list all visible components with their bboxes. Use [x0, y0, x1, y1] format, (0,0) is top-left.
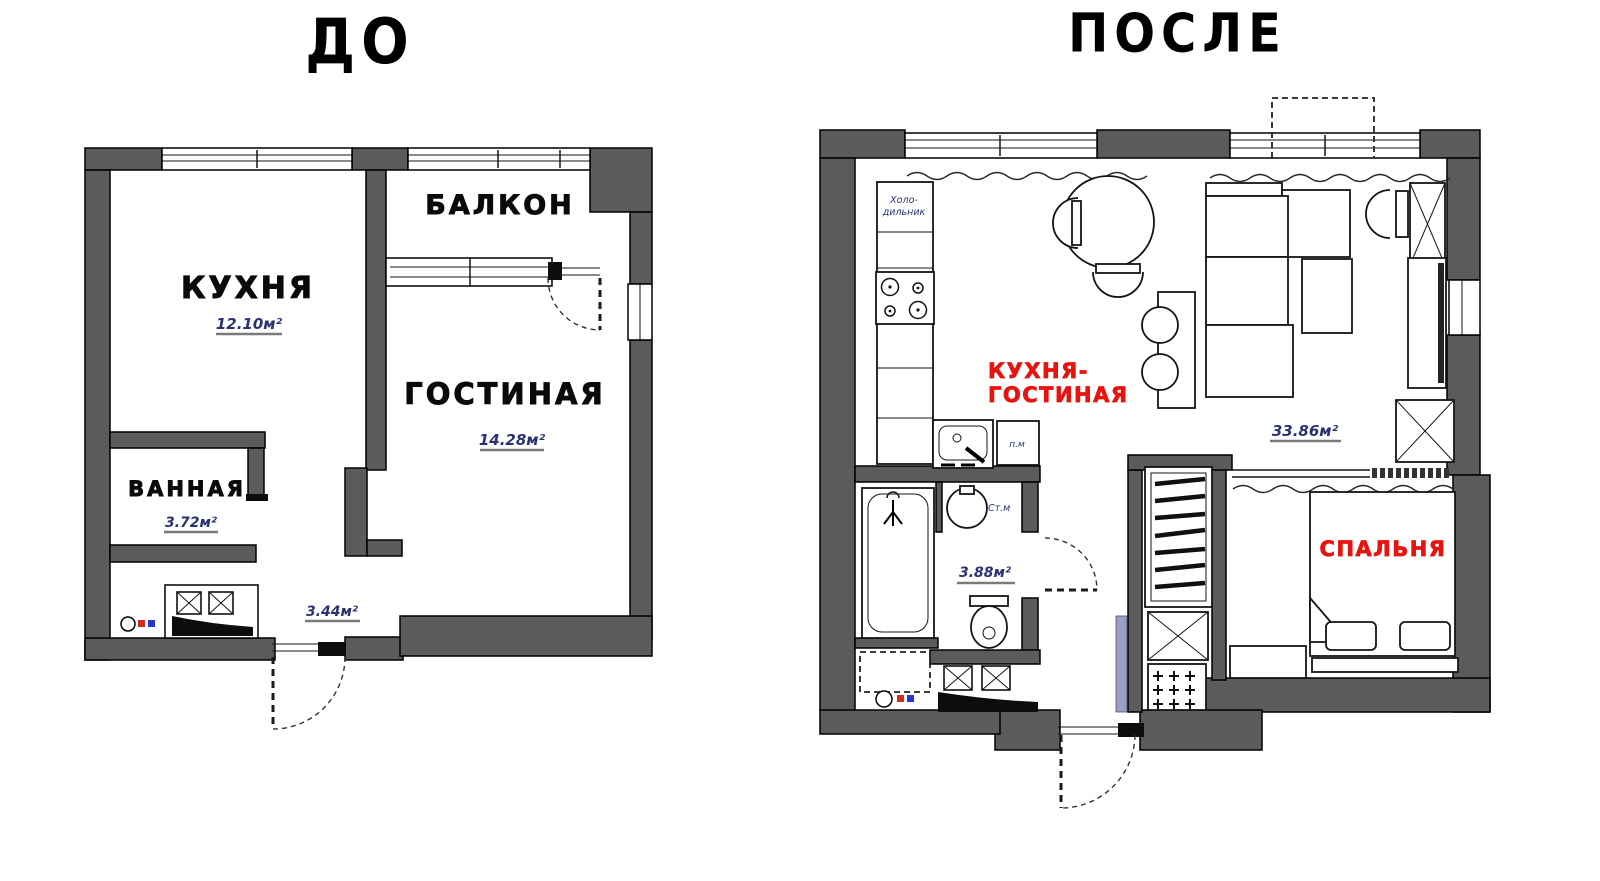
toilet	[970, 596, 1008, 648]
kitchen-living-label-line2: ГОСТИНАЯ	[988, 383, 1129, 407]
hanger-wardrobe	[1145, 467, 1212, 607]
kitchen-sink	[933, 420, 993, 468]
vent-shaft-before	[165, 585, 258, 638]
entry-door-before	[272, 642, 346, 729]
bathroom-area: 3.72м²	[165, 515, 218, 531]
before-windows	[162, 148, 652, 340]
shaft-x-box	[1148, 612, 1208, 660]
living-room-label: ГОСТИНАЯ	[404, 377, 606, 411]
wardrobe-x-cabinet	[1410, 183, 1445, 265]
balcony-label: БАЛКОН	[425, 190, 575, 221]
stove	[876, 272, 934, 324]
fridge-label-line2: дильник	[882, 207, 926, 218]
floorplan-comparison: ДО ПОСЛЕ	[0, 0, 1600, 881]
sliding-panel	[1116, 616, 1127, 712]
washing-machine-label: Ст.м	[988, 503, 1010, 514]
storage-x-box	[1396, 400, 1454, 462]
living-room-area: 14.28м²	[479, 431, 546, 449]
plumbing-riser-before	[121, 617, 155, 631]
storage-niche	[860, 652, 930, 692]
tv-console	[1408, 258, 1446, 388]
kitchen-label: КУХНЯ	[181, 271, 315, 306]
entry-door-after	[1058, 723, 1144, 808]
fridge-label-line1: Холо-	[889, 195, 918, 206]
bathroom-door-after	[1045, 538, 1097, 590]
dishwasher: п.м	[997, 421, 1039, 465]
plans-drawing: КУХНЯ 12.10м² БАЛКОН ГОСТИНАЯ 14.28м² ВА…	[0, 0, 1600, 881]
vent-shaft-after	[938, 666, 1038, 712]
plumbing-riser-after	[876, 691, 914, 707]
sofa	[1206, 183, 1352, 397]
balcony-door	[548, 262, 600, 330]
after-plan: п.м	[820, 98, 1490, 808]
kitchen-living-label-line1: КУХНЯ-	[988, 359, 1089, 383]
bathroom-area-after: 3.88м²	[959, 565, 1012, 581]
bed	[1310, 492, 1458, 672]
washing-machine: Ст.м	[947, 486, 1010, 528]
dishwasher-label: п.м	[1009, 440, 1025, 450]
bedroom-partition	[1232, 470, 1452, 477]
bathtub	[862, 488, 934, 638]
bedroom-label: СПАЛЬНЯ	[1320, 537, 1447, 561]
armchair	[1366, 190, 1408, 238]
kitchen-living-area: 33.86м²	[1272, 422, 1339, 440]
hallway-area: 3.44м²	[306, 604, 359, 620]
kitchen-area: 12.10м²	[216, 315, 283, 333]
bathroom-door-jamb	[246, 494, 268, 501]
tile-floor	[1148, 664, 1206, 710]
dresser	[1230, 646, 1306, 678]
bar-table	[1142, 292, 1195, 408]
balcony-window-band	[386, 258, 552, 286]
dining-table	[1053, 176, 1154, 297]
bathroom-label: ВАННАЯ	[128, 477, 246, 501]
before-plan: КУХНЯ 12.10м² БАЛКОН ГОСТИНАЯ 14.28м² ВА…	[85, 148, 652, 729]
